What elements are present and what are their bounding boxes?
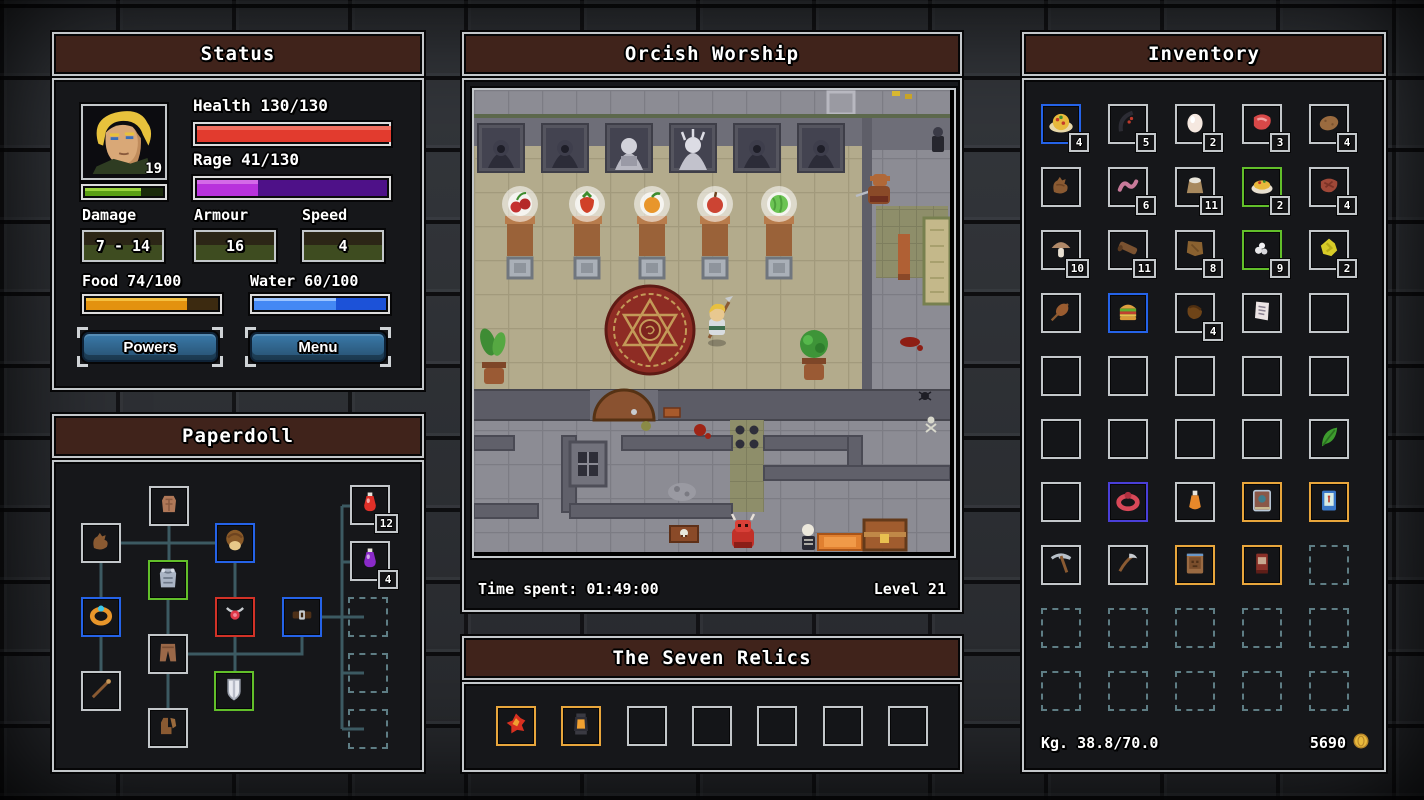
item-count-badge: 11: [1133, 259, 1156, 278]
item-count-badge: 4: [1337, 133, 1357, 152]
game-screen: Status 19 Health 130/130 Rage: [0, 0, 1424, 800]
mushroom-slot[interactable]: 10: [1041, 230, 1081, 270]
meat-skewer-icon: [1047, 297, 1075, 329]
paperdoll-panel: 124: [52, 460, 424, 772]
health-label: Health 130/130: [193, 96, 328, 115]
xp-bar: [81, 184, 167, 200]
relic-lantern-icon: [567, 710, 595, 742]
speed-value: 4: [302, 230, 384, 262]
red-potion-slot[interactable]: 12: [350, 485, 390, 525]
gem-tome-slot[interactable]: [1242, 482, 1282, 522]
flour-sack-slot[interactable]: 11: [1175, 167, 1215, 207]
food-label: Food 74/100: [82, 272, 181, 290]
raw-meat-slot[interactable]: 3: [1242, 104, 1282, 144]
torso-icon: [155, 490, 183, 522]
game-viewport-panel: Time spent: 01:49:00 Level 21: [462, 78, 962, 612]
wand-icon: [87, 675, 115, 707]
character-portrait[interactable]: 19: [81, 104, 167, 180]
rage-bar: [193, 176, 391, 200]
egg-slot[interactable]: 2: [1175, 104, 1215, 144]
empty-slot[interactable]: [1041, 419, 1081, 459]
armour-value: 16: [194, 230, 276, 262]
head-hair-slot[interactable]: [215, 523, 255, 563]
pasta-plate-slot[interactable]: 4: [1041, 104, 1081, 144]
item-count-badge: 10: [1066, 259, 1089, 278]
pickaxe-icon: [1047, 549, 1075, 581]
red-book-slot[interactable]: [1242, 545, 1282, 585]
portrait-level: 19: [145, 161, 162, 177]
item-count-badge: 3: [1270, 133, 1290, 152]
shield-slot[interactable]: [214, 671, 254, 711]
coin-count: 5690: [1310, 734, 1346, 752]
empty-slot[interactable]: [1309, 671, 1349, 711]
inventory-title-text: Inventory: [1148, 43, 1260, 65]
damage-label: Damage: [82, 206, 136, 224]
item-count-badge: 5: [1136, 133, 1156, 152]
red-ring-slot[interactable]: [1108, 482, 1148, 522]
item-count-badge: 4: [378, 570, 398, 589]
item-count-badge: 2: [1270, 196, 1290, 215]
red-ring-icon: [1114, 486, 1142, 518]
white-stones-slot[interactable]: 9: [1242, 230, 1282, 270]
water-label: Water 60/100: [250, 272, 358, 290]
meat-skewer-slot[interactable]: [1041, 293, 1081, 333]
paperdoll-title-text: Paperdoll: [182, 425, 294, 447]
inventory-panel-title: Inventory: [1022, 32, 1386, 76]
speed-label: Speed: [302, 206, 347, 224]
location-panel-title: Orcish Worship: [462, 32, 962, 76]
potato-slot[interactable]: 4: [1309, 104, 1349, 144]
glove-icon: [87, 527, 115, 559]
relic-fire-icon: [502, 710, 530, 742]
coin-icon: [1352, 732, 1370, 754]
empty-slot[interactable]: [1108, 608, 1148, 648]
omelette-slot[interactable]: 2: [1242, 167, 1282, 207]
worm-slot[interactable]: 6: [1108, 167, 1148, 207]
empty-slot[interactable]: [1309, 356, 1349, 396]
relics-panel: [462, 682, 962, 772]
red-book-icon: [1248, 549, 1276, 581]
empty-slot[interactable]: [1108, 671, 1148, 711]
food-bar: [82, 294, 222, 314]
item-count-badge: 11: [1200, 196, 1223, 215]
empty-slot[interactable]: [1041, 356, 1081, 396]
damage-value: 7 - 14: [82, 230, 164, 262]
empty-slot[interactable]: [1108, 356, 1148, 396]
shield-icon: [220, 675, 248, 707]
health-bar: [193, 122, 391, 146]
green-herb-icon: [1315, 423, 1343, 455]
empty-slot[interactable]: [1242, 671, 1282, 711]
hamburger-icon: [1114, 297, 1142, 329]
item-count-badge: 4: [1069, 133, 1089, 152]
dark-figure-npc: [932, 127, 944, 152]
leather-hide-slot[interactable]: 8: [1175, 230, 1215, 270]
empty-slot[interactable]: [1041, 671, 1081, 711]
blue-book-icon: [1315, 486, 1343, 518]
leather-glove-slot[interactable]: [1041, 167, 1081, 207]
face-tome-icon: [1181, 549, 1209, 581]
empty-slot[interactable]: [627, 706, 667, 746]
empty-slot[interactable]: [1175, 608, 1215, 648]
leather-pouch-slot[interactable]: 4: [1175, 293, 1215, 333]
empty-slot[interactable]: [348, 597, 388, 637]
pickaxe-slot[interactable]: [1041, 545, 1081, 585]
green-herb-slot[interactable]: [1309, 419, 1349, 459]
gold-ring-icon: [87, 601, 115, 633]
status-panel-title: Status: [52, 32, 424, 76]
weight-label: Kg. 38.8/70.0: [1041, 734, 1158, 752]
sulfur-crystal-slot[interactable]: 2: [1309, 230, 1349, 270]
pants-icon: [154, 638, 182, 670]
orange-vial-slot[interactable]: [1175, 482, 1215, 522]
empty-slot[interactable]: [757, 706, 797, 746]
dark-bow-slot[interactable]: 5: [1108, 104, 1148, 144]
chest-armor-slot[interactable]: [148, 560, 188, 600]
scythe-icon: [1114, 549, 1142, 581]
relics-slots: [496, 706, 928, 746]
empty-slot[interactable]: [1309, 545, 1349, 585]
empty-slot[interactable]: [1242, 608, 1282, 648]
belt-icon: [288, 601, 316, 633]
empty-slot[interactable]: [1242, 419, 1282, 459]
game-scene: [474, 90, 950, 552]
empty-slot[interactable]: [1041, 482, 1081, 522]
boots-slot[interactable]: [148, 708, 188, 748]
scythe-slot[interactable]: [1108, 545, 1148, 585]
rage-label: Rage 41/130: [193, 150, 299, 169]
glove-slot[interactable]: [81, 523, 121, 563]
item-count-badge: 4: [1337, 196, 1357, 215]
armour-label: Armour: [194, 206, 248, 224]
empty-slot[interactable]: [1041, 608, 1081, 648]
inventory-panel: 452346112410118924 Kg. 38.8/70.0 5690: [1022, 78, 1386, 772]
empty-slot[interactable]: [888, 706, 928, 746]
menu-button[interactable]: Menu: [250, 332, 386, 362]
item-count-badge: 6: [1136, 196, 1156, 215]
item-count-badge: 12: [375, 514, 398, 533]
wood-log-slot[interactable]: 11: [1108, 230, 1148, 270]
boots-icon: [154, 712, 182, 744]
time-spent-label: Time spent: 01:49:00: [478, 580, 659, 598]
wand-slot[interactable]: [81, 671, 121, 711]
item-count-badge: 8: [1203, 259, 1223, 278]
item-count-badge: 4: [1203, 322, 1223, 341]
empty-slot[interactable]: [1175, 356, 1215, 396]
empty-slot[interactable]: [823, 706, 863, 746]
item-count-badge: 2: [1203, 133, 1223, 152]
empty-slot[interactable]: [1242, 356, 1282, 396]
empty-slot[interactable]: [692, 706, 732, 746]
purple-potion-slot[interactable]: 4: [350, 541, 390, 581]
empty-slot[interactable]: [1309, 608, 1349, 648]
empty-slot[interactable]: [348, 653, 388, 693]
powers-button[interactable]: Powers: [82, 332, 218, 362]
status-title-text: Status: [201, 43, 276, 65]
relic-fire-slot[interactable]: [496, 706, 536, 746]
pants-slot[interactable]: [148, 634, 188, 674]
relics-title-text: The Seven Relics: [612, 647, 811, 669]
water-bar: [250, 294, 390, 314]
status-panel: 19 Health 130/130 Rage 41/130 Damage Arm…: [52, 78, 424, 390]
empty-slot[interactable]: [348, 709, 388, 749]
face-tome-slot[interactable]: [1175, 545, 1215, 585]
chest-armor-icon: [154, 564, 182, 596]
hamburger-slot[interactable]: [1108, 293, 1148, 333]
item-count-badge: 9: [1270, 259, 1290, 278]
gold-ring-slot[interactable]: [81, 597, 121, 637]
relics-panel-title: The Seven Relics: [462, 636, 962, 680]
empty-slot[interactable]: [1175, 671, 1215, 711]
location-title-text: Orcish Worship: [625, 43, 799, 65]
red-amulet-slot[interactable]: [215, 597, 255, 637]
treasure-chest: [864, 520, 906, 550]
game-viewport[interactable]: [472, 88, 956, 558]
empty-slot[interactable]: [1175, 419, 1215, 459]
gem-tome-icon: [1248, 486, 1276, 518]
paperdoll-panel-title: Paperdoll: [52, 414, 424, 458]
scroll-slot[interactable]: [1242, 293, 1282, 333]
leather-glove-icon: [1047, 171, 1075, 203]
relic-lantern-slot[interactable]: [561, 706, 601, 746]
torso-slot[interactable]: [149, 486, 189, 526]
empty-slot[interactable]: [1309, 293, 1349, 333]
orange-vial-icon: [1181, 486, 1209, 518]
dungeon-level-label: Level 21: [874, 580, 946, 598]
red-amulet-icon: [221, 601, 249, 633]
item-count-badge: 2: [1337, 259, 1357, 278]
cooked-meat-slot[interactable]: 4: [1309, 167, 1349, 207]
belt-slot[interactable]: [282, 597, 322, 637]
scroll-icon: [1248, 297, 1276, 329]
blue-book-slot[interactable]: [1309, 482, 1349, 522]
head-hair-icon: [221, 527, 249, 559]
empty-slot[interactable]: [1108, 419, 1148, 459]
